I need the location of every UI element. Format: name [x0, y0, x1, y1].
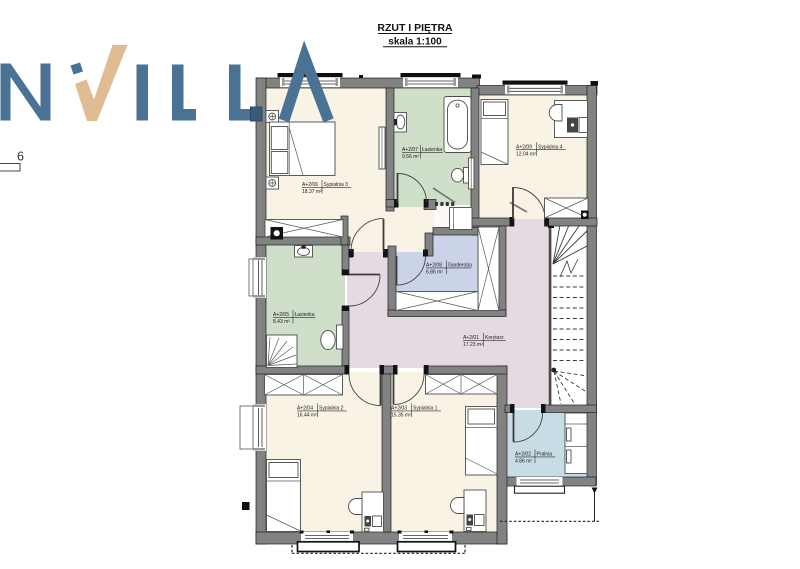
svg-text:4.86 m²: 4.86 m²: [515, 459, 532, 465]
svg-text:9.56 m²: 9.56 m²: [402, 154, 419, 160]
svg-text:8.43 m²: 8.43 m²: [273, 319, 290, 325]
svg-text:16.44 m²: 16.44 m²: [297, 413, 317, 419]
svg-text:6: 6: [17, 150, 24, 164]
svg-text:17.23 m²: 17.23 m²: [463, 342, 483, 348]
svg-text:RZUT I PIĘTRA: RZUT I PIĘTRA: [377, 22, 453, 34]
svg-text:18.37 m²: 18.37 m²: [302, 189, 322, 195]
svg-text:6.86 m²: 6.86 m²: [426, 270, 443, 276]
svg-text:12.04 m²: 12.04 m²: [516, 151, 536, 157]
svg-text:15.35 m²: 15.35 m²: [391, 413, 411, 419]
svg-text:skala 1:100: skala 1:100: [388, 37, 442, 48]
